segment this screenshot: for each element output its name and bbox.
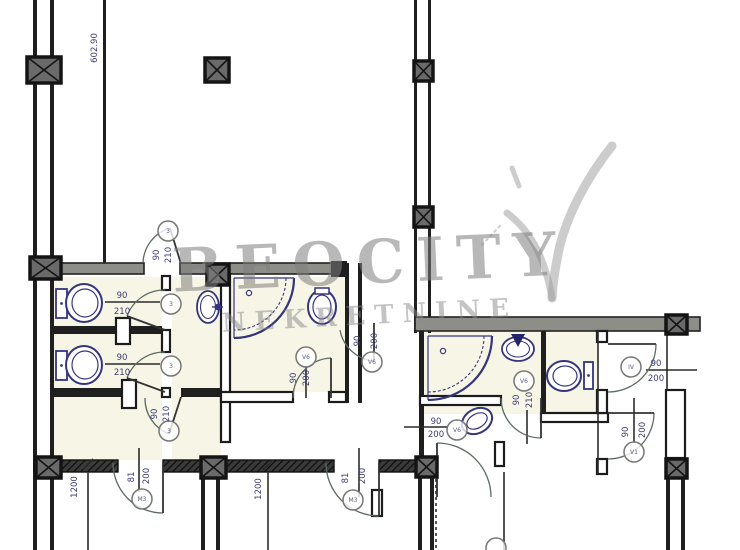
dimension-label: 90	[431, 417, 442, 427]
dimension-label: 90	[651, 359, 662, 369]
dimension-label: 90	[512, 395, 522, 406]
watermark-logo-mark	[507, 213, 552, 298]
watermark-logo-mark	[552, 146, 612, 298]
door-tag-bubble: 3	[158, 221, 178, 241]
wall	[180, 263, 346, 274]
door-tag-bubble: 3	[161, 356, 181, 376]
wall	[52, 326, 162, 334]
svg-text:V1: V1	[630, 449, 638, 456]
dimension-label: 200	[370, 333, 380, 349]
wall	[221, 274, 230, 442]
toilet-icon	[56, 284, 102, 322]
wall	[162, 388, 170, 397]
door-tag-bubble: V1	[624, 442, 644, 462]
dimension-label: 1200	[70, 476, 80, 498]
watermark-logo-mark	[512, 168, 519, 186]
door-tag-bubble: V6	[362, 352, 382, 372]
wall	[122, 380, 136, 408]
wall	[495, 442, 504, 466]
floor-plan: 3333V6V6V6IVV1V6M3M3602.9090210902109021…	[0, 0, 740, 550]
door-tag-bubble	[486, 538, 506, 550]
dimension-label: 1200	[254, 478, 264, 500]
dimension-label: 200	[358, 468, 368, 484]
door-tag-bubble: IV	[621, 357, 641, 377]
svg-text:3: 3	[167, 428, 171, 435]
wall	[221, 392, 293, 402]
dimension-label: 210	[162, 406, 172, 422]
wall	[430, 477, 434, 550]
watermark-logo-mark	[480, 226, 500, 247]
wall	[216, 478, 220, 550]
wall	[681, 478, 685, 550]
wall	[181, 388, 221, 397]
column-marker	[201, 457, 226, 478]
door-tag-bubble: 3	[161, 294, 181, 314]
svg-text:V6: V6	[453, 427, 461, 434]
wall	[428, 0, 431, 333]
wall	[358, 263, 362, 403]
door-tag-bubble: V6	[514, 371, 534, 391]
door-tag-bubble: V6	[296, 347, 316, 367]
wall	[418, 477, 422, 550]
svg-text:3: 3	[166, 228, 170, 235]
dimension-label: 210	[114, 307, 130, 317]
dimension-label: 90	[353, 336, 363, 347]
svg-text:IV: IV	[628, 364, 635, 371]
dimension-label: 81	[341, 473, 351, 484]
svg-text:V6: V6	[302, 354, 310, 361]
wall	[666, 390, 685, 458]
wall	[345, 263, 349, 403]
wall	[52, 263, 144, 274]
dimension-label: 200	[142, 468, 152, 484]
column-marker	[414, 61, 433, 81]
column-marker	[36, 457, 61, 478]
dimension-label: 200	[302, 370, 312, 386]
wall	[162, 330, 170, 352]
dimension-label: 210	[164, 247, 174, 263]
toilet-icon	[56, 346, 102, 384]
dimension-label: 602.90	[90, 33, 100, 63]
dimension-label: 200	[428, 430, 444, 440]
wc-fixture-icon	[308, 288, 336, 324]
wall	[103, 0, 106, 264]
dimension-label: 210	[114, 368, 130, 378]
svg-text:V6: V6	[368, 359, 376, 366]
svg-text:M3: M3	[349, 497, 358, 504]
column-marker	[27, 57, 61, 83]
wall	[116, 318, 130, 344]
column-marker	[416, 457, 437, 477]
column-marker	[30, 257, 61, 279]
wall	[331, 261, 347, 277]
toilet-icon	[547, 361, 593, 391]
door-tag-bubble: M3	[132, 489, 152, 509]
column-marker	[666, 459, 687, 478]
floor-plan-svg: 3333V6V6V6IVV1V6M3M3602.9090210902109021…	[0, 0, 740, 550]
dimension-label: 90	[152, 250, 162, 261]
dimension-label: 90	[621, 427, 631, 438]
dimension-label: 200	[638, 422, 648, 438]
column-marker	[666, 315, 687, 334]
column-marker	[205, 58, 229, 82]
dimension-label: 90	[150, 409, 160, 420]
door-tag-bubble: 3	[159, 421, 179, 441]
wall	[666, 478, 670, 550]
wall	[162, 276, 170, 290]
wall	[163, 460, 334, 472]
dimension-label: 210	[525, 392, 535, 408]
dimension-label: 200	[648, 374, 664, 384]
column-marker	[414, 207, 433, 227]
column-marker	[207, 264, 229, 285]
svg-text:3: 3	[169, 301, 173, 308]
door-swing-arc	[437, 443, 491, 497]
wall	[414, 0, 417, 333]
dimension-label: 90	[289, 373, 299, 384]
wall	[415, 317, 700, 331]
dimension-label: 90	[117, 353, 128, 363]
wall	[372, 490, 382, 516]
door-tag-bubble: V6	[447, 420, 467, 440]
svg-text:M3: M3	[138, 496, 147, 503]
wall	[201, 478, 205, 550]
svg-text:3: 3	[169, 363, 173, 370]
svg-text:V6: V6	[520, 378, 528, 385]
dimension-label: 81	[127, 472, 137, 483]
dimension-label: 90	[117, 291, 128, 301]
door-tag-bubble: M3	[343, 490, 363, 510]
